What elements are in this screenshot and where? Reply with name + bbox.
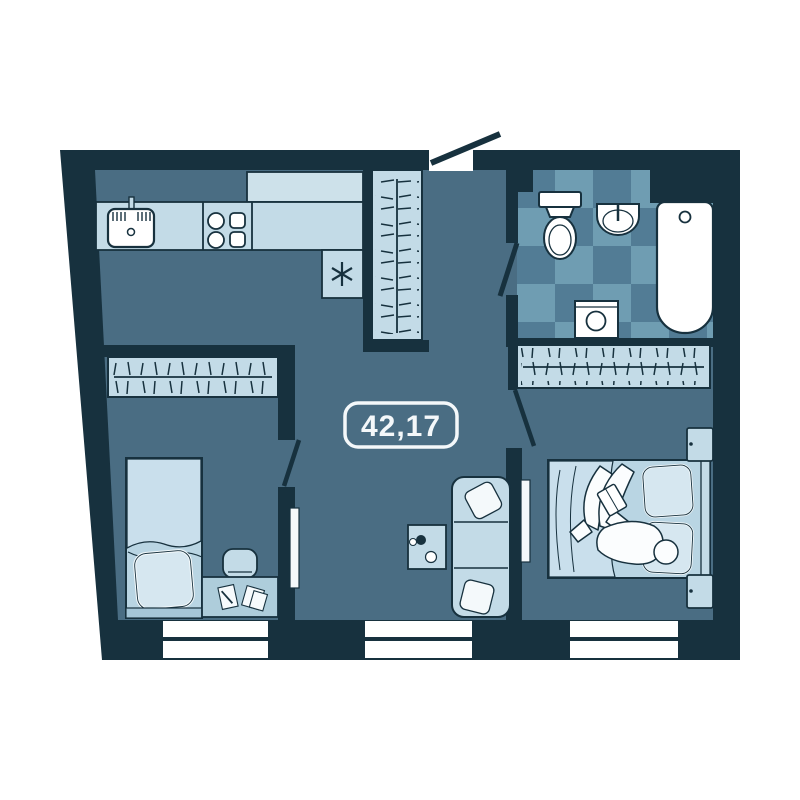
nightstand: [687, 575, 713, 608]
sofa: [452, 477, 510, 617]
bedroom-left-wardrobe: [108, 357, 278, 397]
area-label-text: 42,17: [361, 410, 441, 443]
washbasin-icon: [597, 204, 639, 235]
area-label: 42,17: [345, 403, 457, 447]
floor-plan-canvas: 42,17: [0, 0, 800, 800]
bathroom: [500, 170, 713, 347]
fridge-icon: [322, 250, 363, 298]
bathroom-wall-upper: [506, 170, 518, 243]
chair: [223, 549, 257, 578]
bedroom-left-door-leaf: [290, 508, 299, 588]
sofa-pillow: [459, 579, 495, 615]
tub-niche-wall: [650, 170, 713, 203]
head: [654, 540, 678, 564]
headboard: [701, 458, 710, 580]
window: [570, 621, 678, 658]
pillow: [642, 464, 693, 517]
pillow: [134, 550, 195, 611]
bedroom-right-door-leaf: [521, 480, 530, 562]
floor-plan-svg: 42,17: [0, 0, 800, 800]
blanket: [127, 459, 201, 548]
washing-machine-icon: [575, 301, 618, 338]
desk: [202, 577, 278, 617]
bathtub-icon: [657, 202, 713, 333]
window: [365, 621, 472, 658]
hall-wardrobe: [363, 170, 429, 352]
bed-single: [126, 458, 202, 618]
nightstand: [687, 428, 713, 461]
coffee-table: [408, 525, 446, 569]
window: [163, 621, 268, 658]
bed-double: [548, 458, 710, 580]
kitchen-counter-top: [247, 172, 363, 202]
bedroom-right-wardrobe: [508, 345, 710, 390]
